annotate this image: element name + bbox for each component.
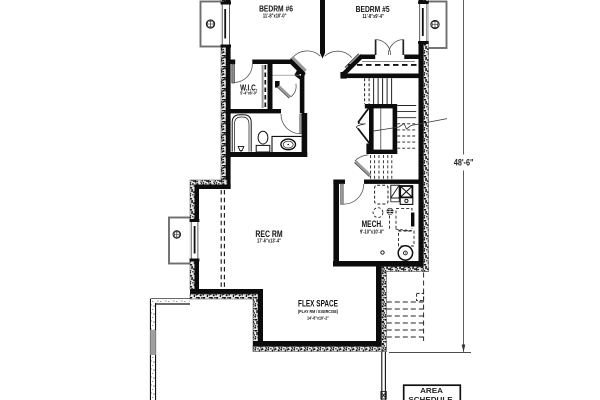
- svg-text:17'-6"x13'-4": 17'-6"x13'-4": [257, 238, 281, 244]
- svg-text:11'-8"x10'-0": 11'-8"x10'-0": [263, 13, 287, 19]
- svg-text:5'-4"x6'-0": 5'-4"x6'-0": [240, 90, 257, 96]
- svg-text:14'-8"x10'-2": 14'-8"x10'-2": [307, 315, 329, 321]
- svg-text:11'-8"x9'-4": 11'-8"x9'-4": [362, 13, 383, 19]
- svg-text:48'-6": 48'-6": [454, 158, 474, 168]
- svg-text:FLEX SPACE: FLEX SPACE: [298, 298, 338, 308]
- svg-text:SCHEDULE: SCHEDULE: [408, 395, 452, 400]
- svg-text:MECH.: MECH.: [362, 219, 383, 229]
- svg-text:AREA: AREA: [420, 386, 443, 395]
- svg-text:9'-10"x10'-0": 9'-10"x10'-0": [360, 229, 384, 235]
- svg-text:(PLAY RM / EXERCISE): (PLAY RM / EXERCISE): [298, 309, 339, 315]
